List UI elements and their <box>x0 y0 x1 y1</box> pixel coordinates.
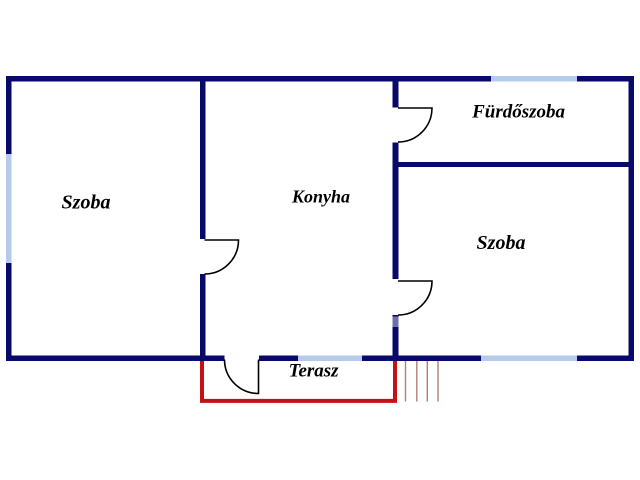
svg-text:Szoba: Szoba <box>477 232 526 254</box>
svg-text:Terasz: Terasz <box>289 361 340 382</box>
svg-text:Konyha: Konyha <box>291 187 350 207</box>
svg-text:Szoba: Szoba <box>62 192 111 214</box>
svg-text:Fürdőszoba: Fürdőszoba <box>471 102 565 123</box>
